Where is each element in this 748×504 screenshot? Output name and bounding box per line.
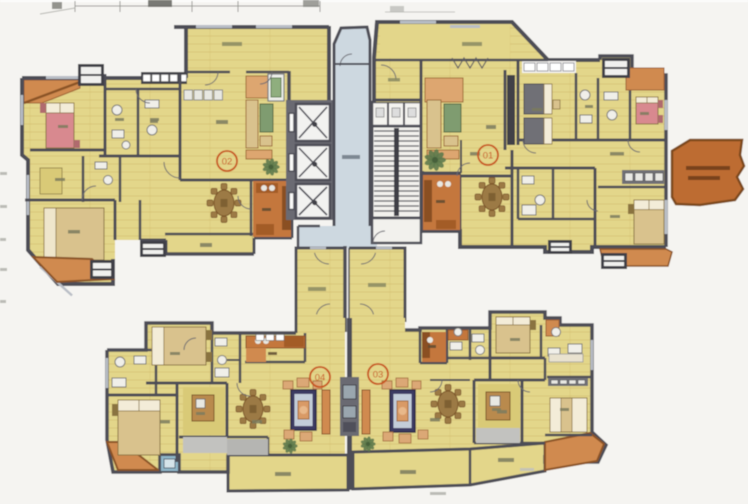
svg-text:02: 02 [222, 157, 233, 168]
svg-text:01: 01 [483, 151, 494, 162]
svg-text:04: 04 [315, 373, 326, 384]
svg-text:03: 03 [373, 370, 384, 381]
